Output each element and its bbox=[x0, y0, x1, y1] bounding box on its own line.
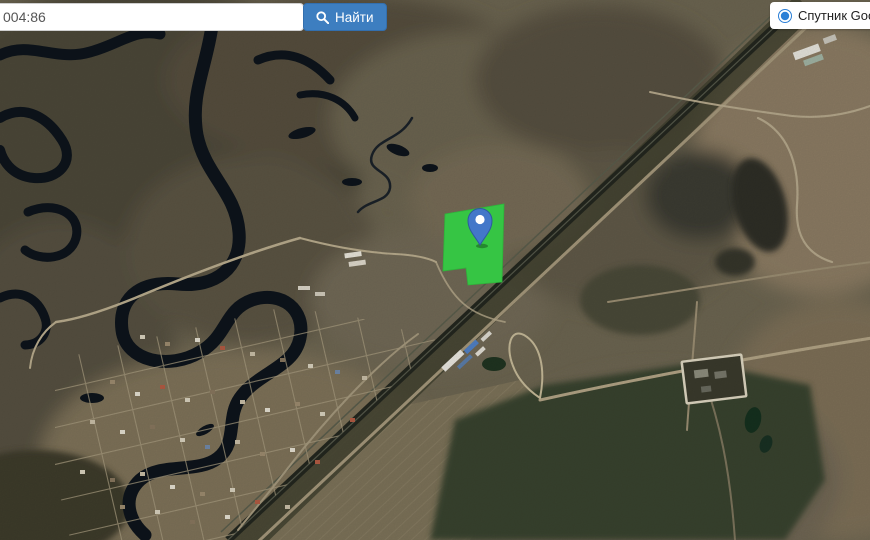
cadastral-number-input[interactable] bbox=[0, 3, 304, 31]
search-icon bbox=[316, 11, 329, 24]
map-canvas[interactable] bbox=[0, 0, 870, 540]
search-button-label: Найти bbox=[335, 10, 374, 25]
satellite-layer-label[interactable]: Спутник Goo bbox=[798, 8, 870, 23]
satellite-layer-radio[interactable] bbox=[778, 9, 792, 23]
layer-control: Спутник Goo bbox=[770, 2, 870, 29]
satellite-imagery bbox=[0, 0, 870, 540]
search-button[interactable]: Найти bbox=[303, 3, 387, 31]
